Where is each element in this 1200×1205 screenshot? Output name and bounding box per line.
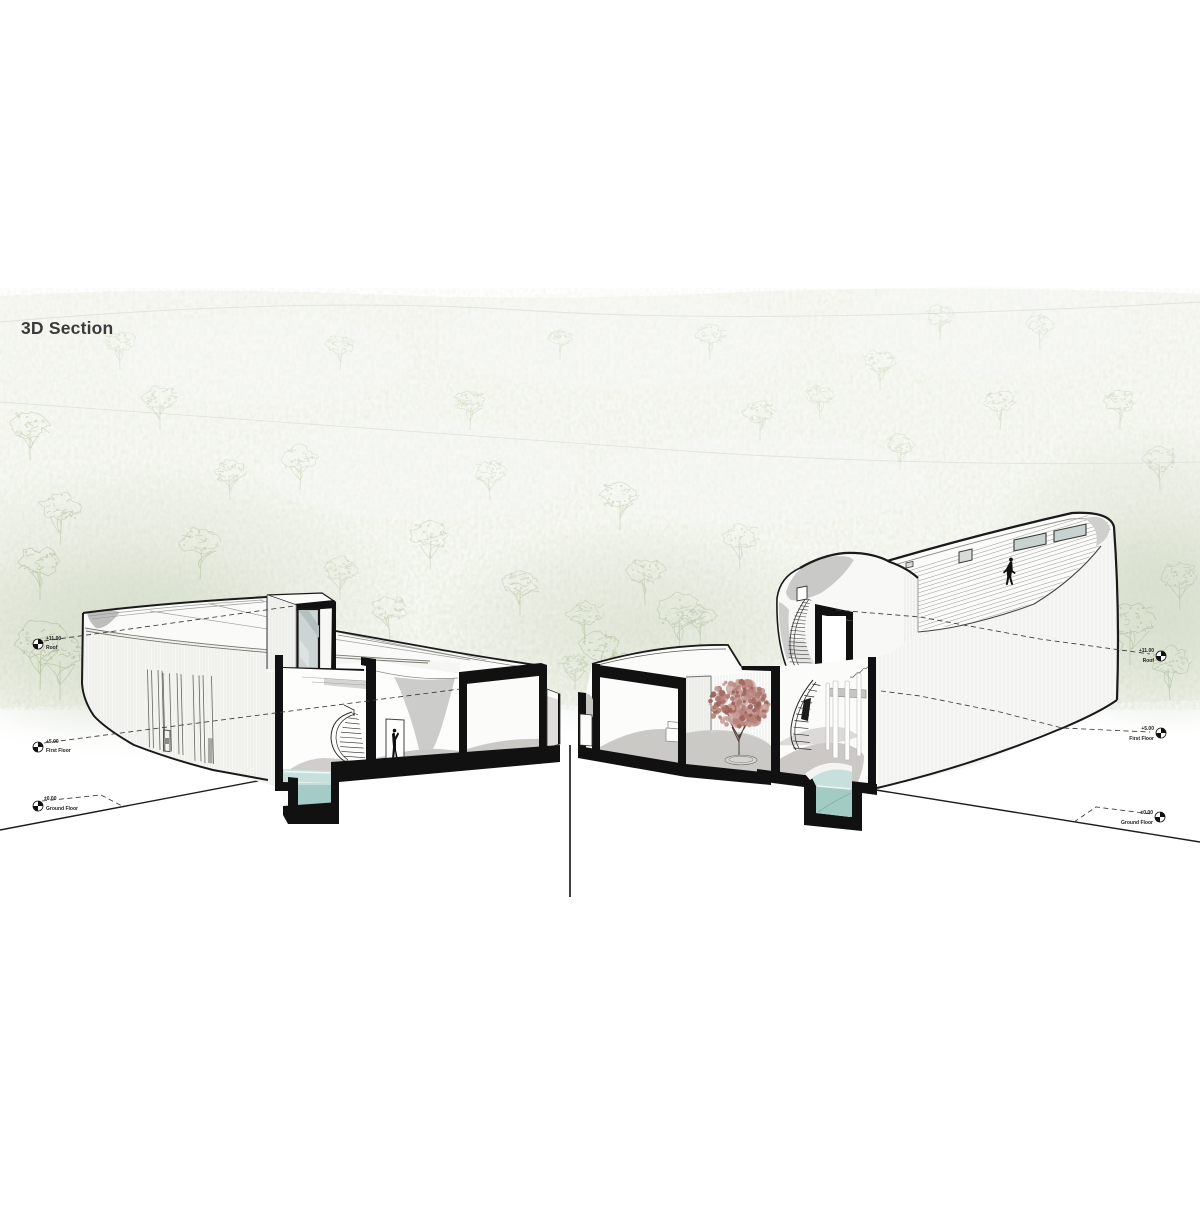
svg-text:+5.00: +5.00 [46,739,59,745]
svg-text:3D Section: 3D Section [21,318,113,338]
svg-text:Roof: Roof [46,645,58,651]
svg-text:First Floor: First Floor [46,748,71,754]
svg-text:Roof: Roof [1143,658,1155,664]
svg-text:±0.00: ±0.00 [44,796,57,802]
svg-text:First Floor: First Floor [1129,736,1154,742]
svg-text:±0.00: ±0.00 [1141,810,1154,816]
svg-text:+11.00: +11.00 [1139,648,1154,654]
svg-text:+11.00: +11.00 [46,636,61,642]
svg-text:Ground Floor: Ground Floor [46,806,78,812]
svg-text:+5.00: +5.00 [1141,726,1154,732]
svg-text:Ground Floor: Ground Floor [1121,820,1153,826]
